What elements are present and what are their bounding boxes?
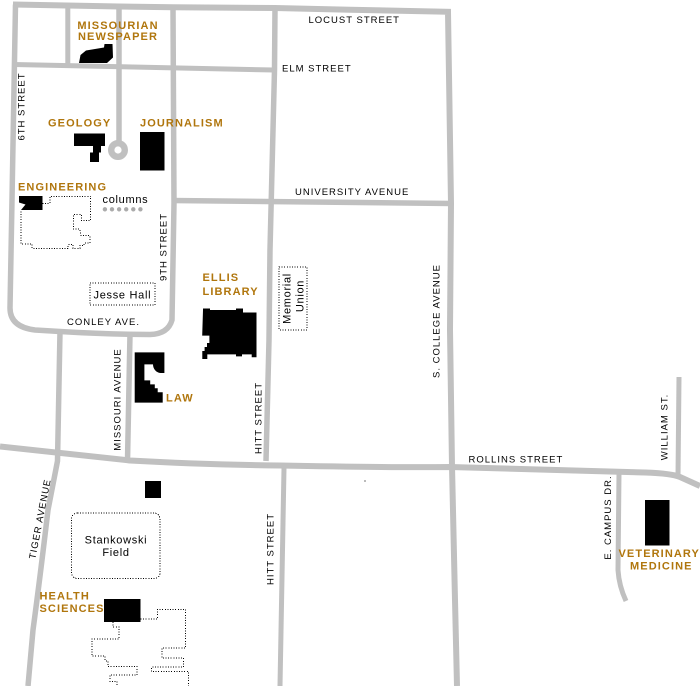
svg-text:CONLEY AVE.: CONLEY AVE. [67, 317, 140, 328]
svg-text:MISSOURI AVENUE: MISSOURI AVENUE [113, 348, 124, 450]
svg-text:UNIVERSITY AVENUE: UNIVERSITY AVENUE [295, 187, 409, 198]
svg-text:LAW: LAW [166, 393, 194, 405]
svg-text:JOURNALISM: JOURNALISM [140, 118, 224, 130]
svg-text:VETERINARY: VETERINARY [619, 548, 700, 560]
svg-text:LOCUST STREET: LOCUST STREET [309, 15, 400, 26]
svg-text:ELM STREET: ELM STREET [282, 64, 352, 75]
svg-text:NEWSPAPER: NEWSPAPER [78, 31, 158, 43]
svg-text:Memorial: Memorial [281, 273, 293, 324]
svg-text:E. CAMPUS DR.: E. CAMPUS DR. [603, 475, 614, 559]
svg-text:S. COLLEGE AVENUE: S. COLLEGE AVENUE [432, 264, 443, 378]
svg-text:HITT STREET: HITT STREET [254, 382, 265, 454]
svg-text:LIBRARY: LIBRARY [203, 286, 259, 298]
svg-text:HEALTH: HEALTH [40, 591, 90, 603]
svg-text:ELLIS: ELLIS [203, 272, 240, 284]
svg-text:ENGINEERING: ENGINEERING [18, 182, 107, 194]
svg-text:Union: Union [294, 280, 306, 312]
svg-text:HITT STREET: HITT STREET [266, 513, 277, 585]
svg-text:6TH STREET: 6TH STREET [17, 72, 28, 140]
svg-text:Stankowski: Stankowski [85, 535, 148, 547]
svg-text:9TH STREET: 9TH STREET [159, 213, 170, 281]
svg-text:GEOLOGY: GEOLOGY [48, 118, 111, 130]
svg-text:ROLLINS STREET: ROLLINS STREET [469, 455, 564, 466]
svg-text:MEDICINE: MEDICINE [630, 560, 693, 572]
svg-text:Field: Field [102, 547, 129, 559]
svg-text:Jesse Hall: Jesse Hall [94, 290, 152, 302]
svg-text:SCIENCES: SCIENCES [40, 603, 105, 615]
svg-text:columns: columns [103, 194, 149, 206]
svg-text:WILLIAM ST.: WILLIAM ST. [660, 394, 671, 460]
